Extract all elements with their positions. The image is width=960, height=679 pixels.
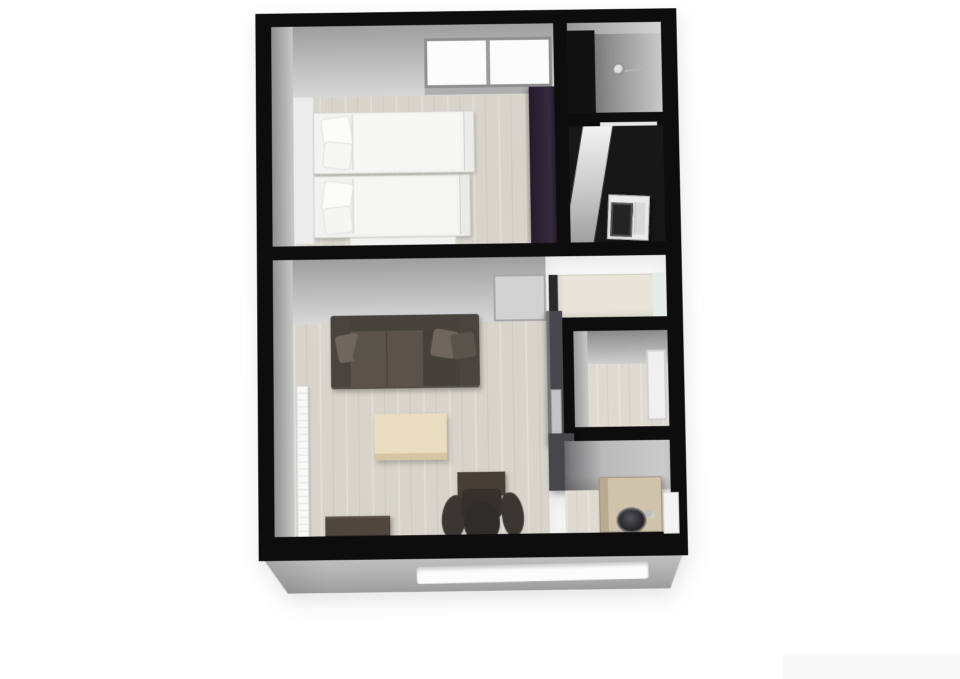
sofa-pillow-2	[352, 335, 380, 365]
washer-door	[610, 202, 633, 237]
laundry-wall-face	[569, 126, 613, 243]
plinth-left-shade	[265, 560, 325, 594]
bedroom	[271, 23, 557, 246]
living-room	[273, 257, 550, 538]
coffee-table-front	[375, 453, 448, 461]
office-chair	[440, 488, 540, 539]
entry-door	[663, 492, 680, 534]
radiator	[296, 386, 309, 539]
laundry-room	[569, 125, 666, 242]
hallway-wall-bottom	[560, 426, 670, 441]
coffee-table-top	[374, 413, 447, 453]
washer-panel	[634, 202, 646, 234]
wardrobe	[529, 86, 557, 243]
watermark-panel	[783, 655, 960, 679]
bed-2-duvet	[352, 177, 457, 234]
plinth	[265, 555, 683, 594]
plinth-window	[417, 562, 649, 585]
bed-1-duvet	[351, 114, 460, 170]
coffee-table	[374, 413, 447, 460]
hallway-wall-top	[558, 316, 667, 331]
living-wall-face-left	[273, 260, 295, 537]
hallway-wall-face-left	[573, 331, 589, 427]
bed-2	[314, 174, 471, 238]
sofa	[331, 314, 481, 389]
chair-arm-right	[499, 491, 527, 537]
apartment-plan	[255, 8, 689, 599]
bedroom-window-mullion	[486, 39, 491, 85]
bed-2-footboard	[459, 175, 470, 234]
bed-1-pillow-2	[322, 141, 353, 170]
shower-head-icon	[613, 63, 625, 75]
refrigerator	[557, 273, 659, 320]
shower-arm	[621, 67, 648, 72]
entry-faucet	[645, 510, 652, 517]
hallway-door	[646, 349, 667, 420]
floor-plan-scene	[0, 0, 960, 679]
kitchen-sink	[551, 389, 563, 436]
bed-2-pillow-2	[322, 205, 354, 235]
bed-1-footboard	[463, 112, 474, 171]
bedroom-wall-face-left	[271, 27, 294, 247]
bed-1	[313, 111, 475, 175]
bedroom-door	[493, 274, 546, 321]
sofa-pillow-4	[450, 331, 477, 360]
washing-machine	[607, 195, 650, 241]
hallway	[573, 330, 669, 427]
